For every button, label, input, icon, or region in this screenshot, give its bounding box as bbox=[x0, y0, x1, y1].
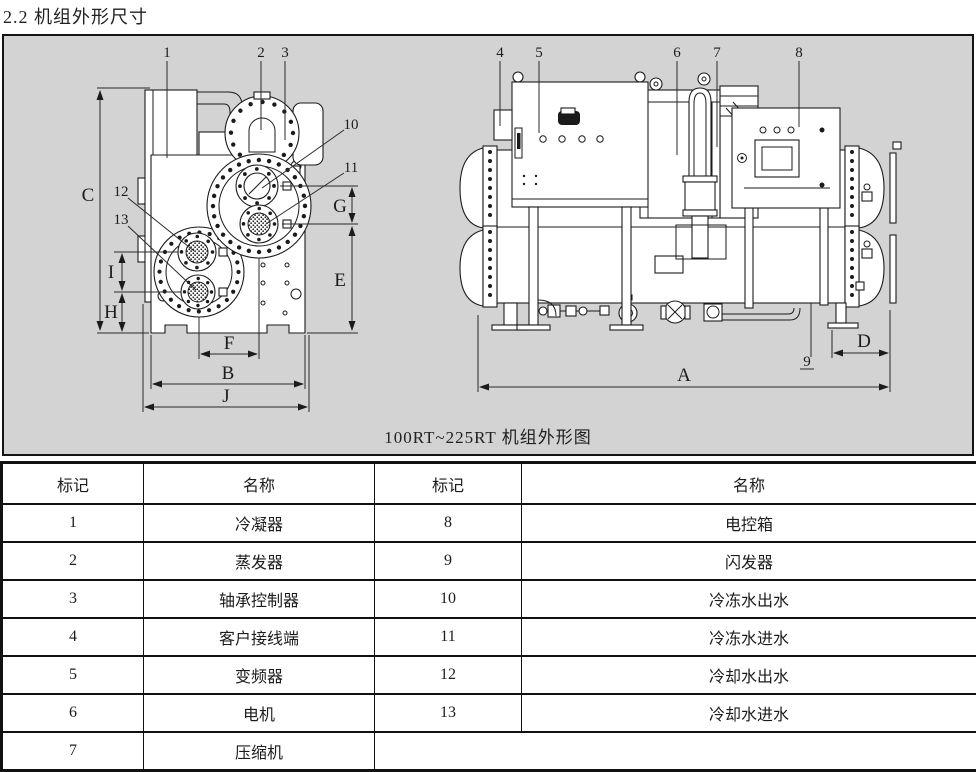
callout-10: 10 bbox=[344, 117, 359, 133]
name-cell: 变频器 bbox=[144, 656, 375, 694]
dim-label-d: D bbox=[857, 331, 871, 352]
name-cell: 冷冻水进水 bbox=[522, 618, 976, 656]
name-cell: 冷凝器 bbox=[144, 504, 375, 542]
header-mark-2: 标记 bbox=[375, 463, 522, 505]
callout-4: 4 bbox=[496, 45, 504, 61]
mark-cell: 3 bbox=[2, 580, 144, 618]
dim-label-h: H bbox=[104, 302, 118, 323]
name-cell: 蒸发器 bbox=[144, 542, 375, 580]
dim-label-b: B bbox=[222, 363, 235, 384]
mark-cell: 2 bbox=[2, 542, 144, 580]
name-cell: 闪发器 bbox=[522, 542, 976, 580]
mark-cell: 12 bbox=[375, 656, 522, 694]
table-row: 4 客户接线端 11 冷冻水进水 bbox=[2, 618, 976, 656]
dim-label-a: A bbox=[677, 365, 691, 386]
callout-1: 1 bbox=[163, 45, 171, 61]
callout-8: 8 bbox=[795, 45, 803, 61]
mark-cell: 6 bbox=[2, 694, 144, 732]
outline-drawing-panel: C I H G E F B bbox=[2, 34, 974, 456]
name-cell: 冷却水进水 bbox=[522, 694, 976, 732]
mark-cell: 5 bbox=[2, 656, 144, 694]
table-row: 5 变频器 12 冷却水出水 bbox=[2, 656, 976, 694]
name-cell: 客户接线端 bbox=[144, 618, 375, 656]
mark-cell: 10 bbox=[375, 580, 522, 618]
dim-label-j: J bbox=[222, 386, 229, 407]
name-cell: 轴承控制器 bbox=[144, 580, 375, 618]
dim-label-f: F bbox=[224, 333, 235, 354]
callout-2: 2 bbox=[257, 45, 265, 61]
callout-5: 5 bbox=[535, 45, 543, 61]
unit-outline-drawing: C I H G E F B bbox=[4, 36, 971, 453]
callout-6: 6 bbox=[673, 45, 681, 61]
name-cell: 冷冻水出水 bbox=[522, 580, 976, 618]
name-cell: 电机 bbox=[144, 694, 375, 732]
callout-13: 13 bbox=[114, 212, 129, 228]
dim-label-i: I bbox=[108, 262, 114, 283]
parts-table: 标记 名称 标记 名称 1 冷凝器 8 电控箱 2 蒸发器 9 闪发器 3 轴承… bbox=[0, 461, 976, 772]
table-row: 3 轴承控制器 10 冷冻水出水 bbox=[2, 580, 976, 618]
dim-label-e: E bbox=[334, 270, 346, 291]
evaporator-front bbox=[207, 154, 311, 258]
callout-12: 12 bbox=[114, 184, 129, 200]
mark-cell: 13 bbox=[375, 694, 522, 732]
mark-cell: 1 bbox=[2, 504, 144, 542]
name-cell: 电控箱 bbox=[522, 504, 976, 542]
table-row: 2 蒸发器 9 闪发器 bbox=[2, 542, 976, 580]
name-cell: 冷却水出水 bbox=[522, 656, 976, 694]
table-row: 1 冷凝器 8 电控箱 bbox=[2, 504, 976, 542]
dim-label-g: G bbox=[333, 196, 347, 217]
header-name-2: 名称 bbox=[522, 463, 976, 505]
callout-9: 9 bbox=[803, 354, 811, 370]
mark-cell: 11 bbox=[375, 618, 522, 656]
dim-label-c: C bbox=[82, 185, 95, 206]
callout-3: 3 bbox=[281, 45, 289, 61]
front-view: C I H G E F B bbox=[82, 45, 359, 412]
page-title: 2.2 机组外形尺寸 bbox=[3, 3, 148, 29]
mark-cell: 8 bbox=[375, 504, 522, 542]
side-dimensions: A D bbox=[478, 310, 890, 392]
drawing-caption: 100RT~225RT 机组外形图 bbox=[4, 423, 972, 448]
table-header-row: 标记 名称 标记 名称 bbox=[2, 463, 976, 505]
header-mark-1: 标记 bbox=[2, 463, 144, 505]
callout-11: 11 bbox=[344, 160, 358, 176]
header-name-1: 名称 bbox=[144, 463, 375, 505]
callout-7: 7 bbox=[713, 45, 721, 61]
table-row: 6 电机 13 冷却水进水 bbox=[2, 694, 976, 732]
mark-cell: 9 bbox=[375, 542, 522, 580]
side-view: A D 4 5 6 7 8 9 bbox=[460, 45, 901, 392]
mark-cell: 4 bbox=[2, 618, 144, 656]
